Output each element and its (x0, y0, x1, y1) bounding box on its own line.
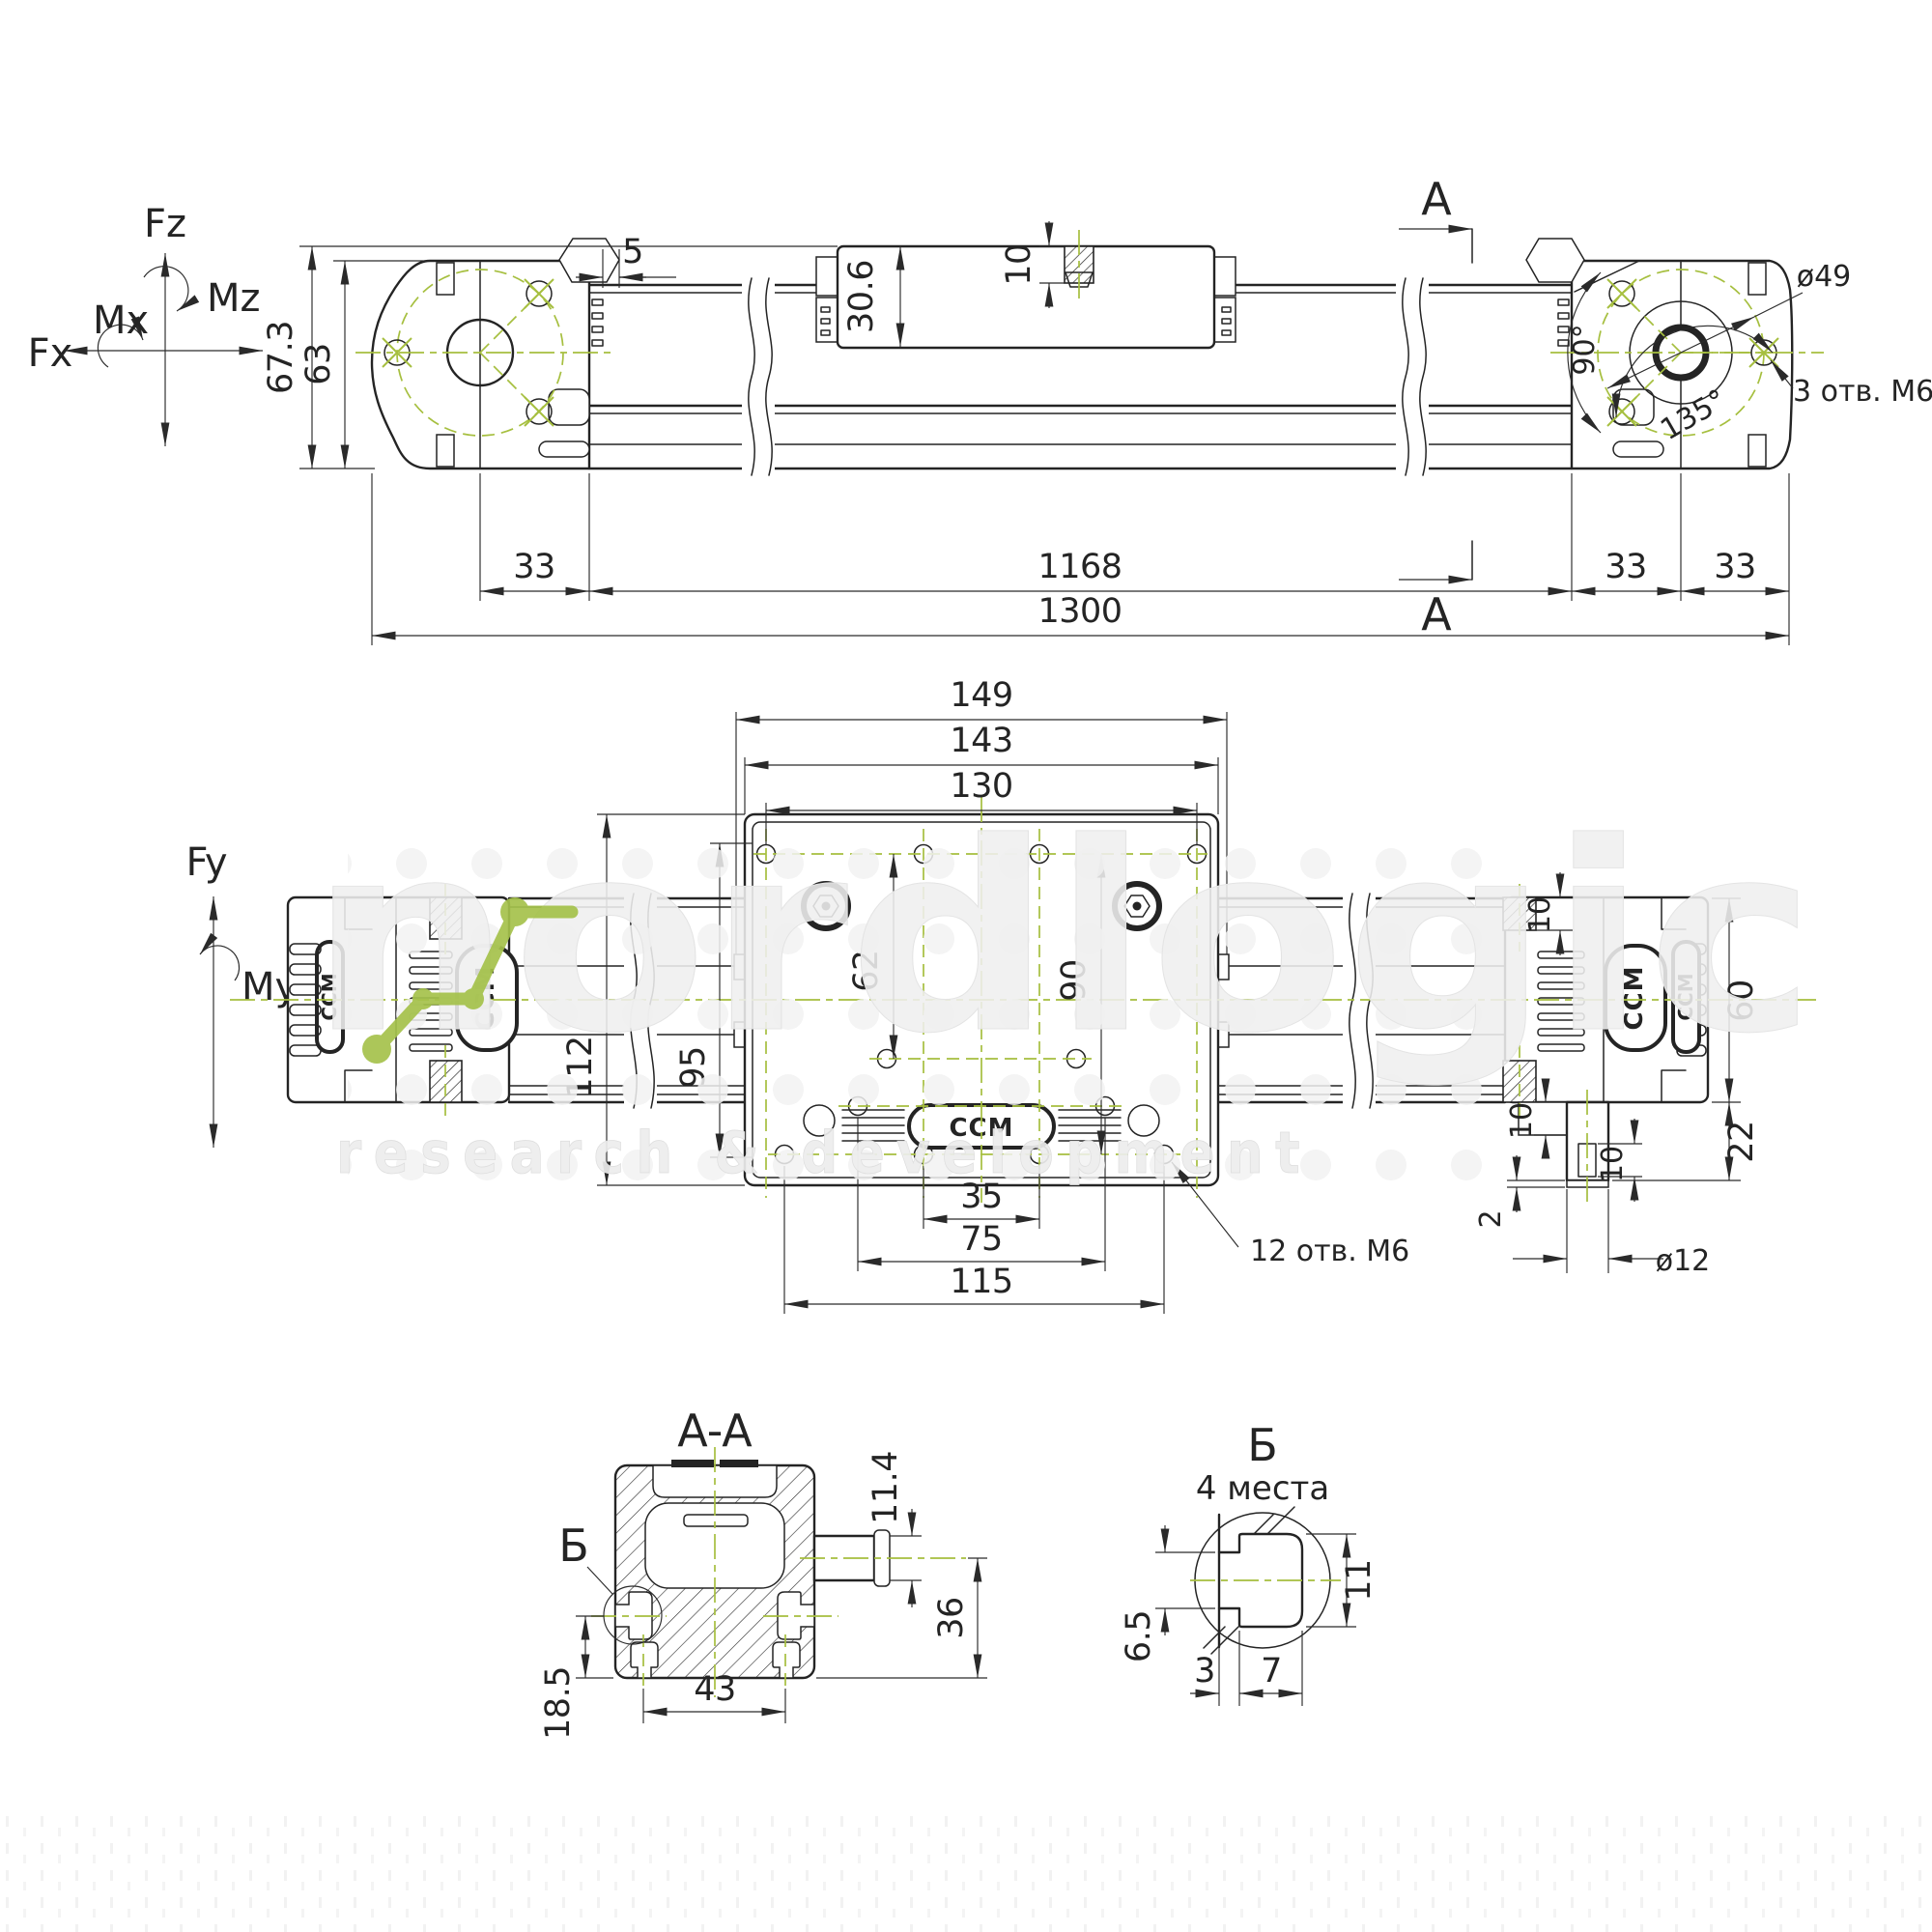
label-mz: Mz (207, 276, 261, 321)
dim-11: 11 (1340, 1559, 1378, 1602)
force-axes-xz: Fz Mz Mx Fx (28, 202, 263, 446)
dim-offset-5: 5 (622, 233, 643, 271)
dim-angle-90: 90° (1568, 324, 1602, 375)
force-axes-y: Fy My (185, 840, 298, 1148)
dim-2: 2 (1474, 1209, 1508, 1228)
limit-switch-body (1526, 239, 1584, 282)
dim-10-key: 10 (1596, 1146, 1630, 1182)
label-fz: Fz (144, 202, 186, 246)
dim-75: 75 (960, 1220, 1003, 1259)
dim-43: 43 (694, 1670, 736, 1709)
dim-33-right2: 33 (1714, 548, 1756, 586)
watermark-tagline: research & development (336, 1120, 1312, 1187)
detail-b-mark: Б (558, 1520, 589, 1572)
dim-carriage-height: 30.6 (842, 260, 881, 333)
detail-b-places: 4 места (1196, 1469, 1329, 1508)
dim-149: 149 (950, 676, 1012, 715)
note-12-holes-m6: 12 отв. М6 (1250, 1235, 1409, 1268)
label-fx: Fx (28, 331, 73, 376)
dim-7: 7 (1261, 1652, 1282, 1690)
dim-overall-height: 67.3 (262, 321, 300, 394)
label-fy: Fy (185, 840, 227, 885)
dim-36: 36 (932, 1597, 971, 1639)
dim-18-5: 18.5 (539, 1666, 578, 1740)
dim-115: 115 (950, 1263, 1012, 1301)
dim-shaft-diameter: ø12 (1656, 1244, 1711, 1278)
watermark-tick-strip (0, 1812, 1932, 1932)
detail-b-title: Б (1247, 1419, 1278, 1471)
dim-6-5: 6.5 (1120, 1610, 1158, 1662)
note-3-holes-m6: 3 отв. М6 (1793, 375, 1932, 409)
left-end-cap (372, 239, 619, 469)
detail-b-view: Б 4 места 11 6.5 3 7 (1120, 1419, 1378, 1706)
dim-143: 143 (950, 722, 1012, 760)
section-aa-view: A-A Б 11.4 36 43 18.5 (539, 1405, 987, 1740)
drawing-page: Fz Mz Mx Fx (0, 0, 1932, 1932)
top-view: A A 67.3 63 5 30.6 10 ø49 3 отв. М6 90° … (262, 173, 1932, 645)
mz-rotation-icon (144, 267, 188, 311)
drawing-canvas: Fz Mz Mx Fx (0, 0, 1932, 1932)
section-label-top: A (1421, 173, 1452, 225)
dim-body-height: 63 (299, 343, 338, 385)
dim-slot-depth: 10 (1000, 243, 1038, 286)
dim-33-left: 33 (513, 548, 555, 586)
dim-10-step: 10 (1505, 1102, 1539, 1139)
watermark-name: nordlogic (309, 786, 1816, 1091)
dim-bolt-circle: ø49 (1797, 260, 1852, 294)
dim-33-right1: 33 (1605, 548, 1647, 586)
label-mx: Mx (93, 298, 149, 343)
right-end-cap (1526, 239, 1792, 469)
dim-1168: 1168 (1037, 548, 1122, 586)
detail-b-dimensions: 11 6.5 3 7 (1120, 1525, 1378, 1706)
dim-22: 22 (1722, 1121, 1761, 1163)
limit-switch-body (559, 239, 619, 282)
my-rotation-icon (200, 946, 240, 980)
dim-1300: 1300 (1037, 592, 1122, 631)
section-label-bottom: A (1421, 588, 1452, 640)
dim-11-4: 11.4 (867, 1451, 905, 1524)
dim-3: 3 (1194, 1652, 1215, 1690)
